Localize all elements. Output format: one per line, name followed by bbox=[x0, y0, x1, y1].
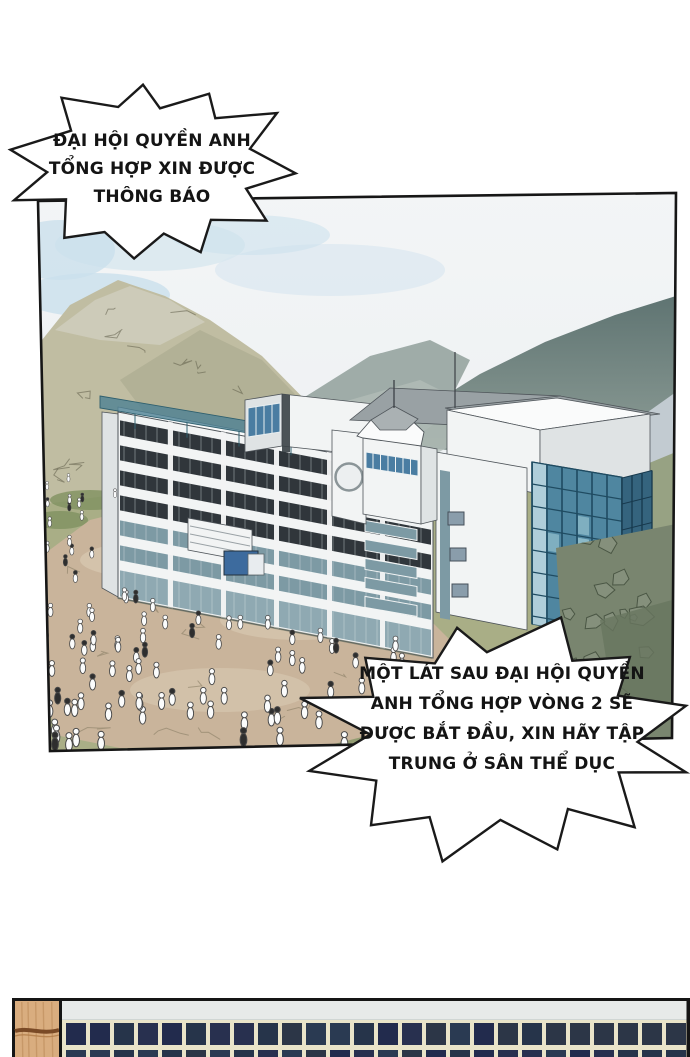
figure-body bbox=[49, 665, 55, 676]
wall-tile bbox=[498, 1050, 518, 1057]
figure-head bbox=[80, 511, 83, 514]
figure-body bbox=[140, 633, 145, 643]
wall-tile bbox=[594, 1050, 614, 1057]
crowd-figure bbox=[78, 619, 83, 633]
wall-tile bbox=[354, 1023, 374, 1045]
wall-tile bbox=[522, 1050, 542, 1057]
crowd-figure bbox=[113, 489, 116, 498]
crowd-figure bbox=[209, 669, 215, 685]
figure-head bbox=[119, 690, 125, 696]
crowd-figure bbox=[163, 615, 168, 629]
crowd-figure bbox=[90, 547, 94, 558]
curtain-light-panel bbox=[578, 516, 589, 536]
figure-head bbox=[238, 615, 243, 620]
figure-head bbox=[208, 701, 214, 707]
figure-head bbox=[134, 647, 139, 652]
figure-body bbox=[55, 692, 61, 704]
figure-body bbox=[126, 670, 132, 681]
figure-body bbox=[73, 574, 77, 582]
figure-body bbox=[359, 683, 365, 694]
figure-head bbox=[201, 687, 206, 692]
figure-head bbox=[300, 658, 305, 663]
figure-body bbox=[72, 705, 78, 717]
figure-body bbox=[63, 558, 67, 566]
facade-pier bbox=[168, 422, 173, 609]
crowd-figure bbox=[150, 598, 155, 611]
figure-head bbox=[142, 612, 147, 617]
figure-head bbox=[122, 588, 126, 592]
next-panel-preview bbox=[12, 998, 690, 1057]
crowd-figure bbox=[48, 603, 53, 616]
figure-head bbox=[240, 728, 246, 734]
crowd-figure bbox=[90, 674, 96, 690]
wall-tile bbox=[642, 1023, 662, 1045]
wall-tile bbox=[330, 1050, 350, 1057]
wall-tile bbox=[402, 1050, 422, 1057]
crowd-figure bbox=[290, 630, 295, 645]
crowd-figure bbox=[196, 611, 201, 625]
figure-body bbox=[196, 615, 201, 625]
figure-body bbox=[48, 520, 52, 527]
crowd-figure bbox=[140, 628, 145, 643]
figure-head bbox=[34, 596, 38, 600]
figure-body bbox=[52, 738, 59, 751]
figure-body bbox=[393, 641, 398, 651]
crowd-figure bbox=[38, 530, 42, 541]
crowd-figure bbox=[240, 728, 247, 746]
wall-tile bbox=[306, 1023, 326, 1045]
wall-tile bbox=[618, 1023, 638, 1045]
comic-page: ĐẠI HỘI QUYỀN ANH TỔNG HỢP XIN ĐƯỢC THÔN… bbox=[0, 0, 690, 1057]
figure-body bbox=[189, 628, 194, 638]
figure-head bbox=[78, 693, 84, 699]
figure-head bbox=[359, 678, 364, 683]
crowd-figure bbox=[187, 702, 193, 719]
crowd-figure bbox=[66, 733, 73, 752]
figure-body bbox=[81, 496, 84, 502]
building-end-cap bbox=[102, 412, 118, 597]
figure-body bbox=[289, 655, 295, 666]
turret-front bbox=[363, 436, 421, 524]
crowd-figure bbox=[80, 511, 84, 521]
crowd-figure bbox=[119, 690, 125, 707]
crowd-figure bbox=[241, 712, 248, 730]
crowd-figure bbox=[81, 493, 84, 502]
crowd-figure bbox=[238, 615, 243, 629]
crowd-figure bbox=[39, 609, 44, 623]
figure-head bbox=[127, 666, 132, 671]
wall-top-band bbox=[62, 1001, 690, 1020]
wall-tile bbox=[258, 1023, 278, 1045]
figure-body bbox=[42, 662, 48, 673]
figure-head bbox=[159, 693, 165, 699]
wall-tile bbox=[570, 1023, 590, 1045]
figure-body bbox=[91, 635, 96, 645]
figure-body bbox=[142, 616, 147, 626]
figure-head bbox=[52, 732, 58, 738]
figure-body bbox=[200, 692, 206, 704]
wall-tile bbox=[282, 1050, 302, 1057]
figure-head bbox=[68, 535, 72, 539]
crowd-figure bbox=[48, 517, 52, 527]
figure-body bbox=[105, 708, 111, 720]
crowd-figure bbox=[133, 590, 138, 603]
figure-body bbox=[90, 679, 96, 690]
figure-body bbox=[268, 714, 274, 726]
crowd-figure bbox=[68, 494, 71, 503]
wall-tile bbox=[642, 1050, 662, 1057]
figure-body bbox=[38, 534, 42, 541]
figure-body bbox=[333, 643, 338, 653]
crowd-figure bbox=[299, 658, 305, 674]
figure-head bbox=[399, 653, 404, 658]
figure-head bbox=[290, 630, 295, 635]
figure-head bbox=[341, 732, 347, 738]
crowd-figure bbox=[301, 701, 307, 718]
figure-body bbox=[150, 602, 155, 611]
wall-tile bbox=[186, 1023, 206, 1045]
crowd-figure bbox=[136, 692, 142, 709]
tile-wall bbox=[62, 1020, 690, 1057]
figure-head bbox=[68, 494, 71, 497]
figure-body bbox=[68, 538, 72, 545]
wall-tile bbox=[522, 1023, 542, 1045]
figure-head bbox=[90, 547, 94, 551]
figure-body bbox=[142, 647, 148, 657]
figure-body bbox=[154, 667, 160, 678]
figure-body bbox=[163, 619, 168, 629]
crowd-figure bbox=[274, 707, 280, 725]
wall-tile bbox=[450, 1050, 470, 1057]
crowd-figure bbox=[49, 661, 55, 677]
figure-body bbox=[264, 700, 270, 712]
wall-tile bbox=[90, 1050, 110, 1057]
crowd-figure bbox=[63, 555, 67, 567]
wall-tile bbox=[666, 1023, 686, 1045]
figure-body bbox=[34, 600, 39, 609]
figure-body bbox=[226, 620, 231, 630]
figure-body bbox=[70, 639, 75, 649]
small-window bbox=[448, 512, 464, 525]
figure-body bbox=[301, 707, 307, 719]
figure-body bbox=[290, 634, 295, 644]
entrance-door bbox=[248, 554, 264, 575]
figure-body bbox=[238, 619, 243, 629]
turret-side bbox=[421, 446, 437, 524]
figure-head bbox=[151, 598, 155, 602]
wall-tile bbox=[570, 1050, 590, 1057]
figure-head bbox=[318, 628, 323, 633]
crowd-figure bbox=[72, 699, 78, 716]
wall-tile bbox=[210, 1050, 230, 1057]
crowd-figure bbox=[78, 693, 84, 710]
figure-body bbox=[82, 645, 87, 655]
figure-body bbox=[115, 642, 120, 652]
crowd-figure bbox=[207, 701, 213, 718]
round-emblem bbox=[336, 464, 363, 491]
crowd-figure bbox=[46, 498, 49, 507]
crowd-figure bbox=[91, 630, 96, 645]
wall-tile bbox=[354, 1050, 374, 1057]
figure-head bbox=[42, 657, 47, 662]
figure-body bbox=[48, 607, 53, 616]
figure-head bbox=[169, 688, 175, 694]
figure-head bbox=[134, 590, 138, 594]
figure-head bbox=[142, 642, 147, 647]
figure-head bbox=[46, 481, 49, 484]
figure-head bbox=[221, 687, 226, 692]
figure-body bbox=[37, 498, 40, 504]
curtain-light-column bbox=[533, 462, 546, 626]
crowd-figure bbox=[265, 615, 270, 629]
figure-head bbox=[328, 681, 333, 686]
wall-tile bbox=[450, 1023, 470, 1045]
crowd-figure bbox=[64, 698, 70, 715]
crowd-figure bbox=[39, 543, 43, 554]
crowd-figure bbox=[52, 732, 59, 751]
small-window bbox=[450, 548, 466, 561]
crowd-figure bbox=[82, 640, 87, 655]
figure-head bbox=[163, 615, 168, 620]
figure-body bbox=[46, 500, 49, 506]
figure-body bbox=[73, 734, 80, 747]
wall-tile bbox=[306, 1050, 326, 1057]
crowd-figure bbox=[200, 687, 206, 704]
figure-head bbox=[49, 661, 54, 666]
crowd-figure bbox=[393, 636, 398, 651]
wall-tile bbox=[402, 1023, 422, 1045]
figure-body bbox=[328, 686, 334, 697]
wall-tile bbox=[258, 1050, 278, 1057]
crowd-figure bbox=[68, 535, 72, 546]
figure-body bbox=[139, 712, 145, 724]
figure-body bbox=[113, 492, 116, 498]
crowd-figure bbox=[115, 637, 120, 652]
crowd-figure bbox=[110, 661, 116, 677]
figure-head bbox=[72, 699, 78, 705]
wall-tile bbox=[666, 1050, 686, 1057]
figure-head bbox=[90, 674, 95, 679]
strip-left-border bbox=[12, 998, 15, 1057]
wood-seam bbox=[15, 1030, 59, 1032]
crowd-figure bbox=[221, 687, 227, 704]
figure-head bbox=[70, 634, 75, 639]
wall-tile bbox=[186, 1050, 206, 1057]
figure-head bbox=[265, 695, 271, 701]
strip-right-border bbox=[687, 998, 690, 1057]
figure-body bbox=[318, 633, 323, 643]
crowd-figure bbox=[98, 731, 105, 750]
stair-tower-slot bbox=[440, 470, 450, 620]
crowd-figure bbox=[277, 727, 284, 745]
figure-body bbox=[281, 685, 287, 696]
figure-body bbox=[274, 712, 280, 724]
figure-head bbox=[190, 623, 195, 628]
figure-body bbox=[240, 733, 247, 746]
crowd-figure bbox=[37, 495, 40, 504]
figure-body bbox=[221, 692, 227, 704]
figure-head bbox=[37, 495, 40, 498]
figure-head bbox=[216, 635, 221, 640]
tree-clump bbox=[32, 511, 88, 529]
wall-tile bbox=[282, 1023, 302, 1045]
figure-body bbox=[98, 737, 105, 750]
figure-body bbox=[39, 614, 44, 624]
crowd-figure bbox=[353, 653, 359, 668]
figure-body bbox=[68, 504, 71, 511]
figure-body bbox=[136, 697, 142, 709]
figure-body bbox=[39, 547, 43, 555]
figure-head bbox=[282, 680, 287, 685]
figure-head bbox=[275, 707, 281, 713]
penthouse-edge bbox=[282, 394, 290, 452]
figure-body bbox=[169, 694, 175, 706]
small-window bbox=[452, 584, 468, 597]
crowd-figure bbox=[169, 688, 175, 705]
crowd-figure bbox=[42, 657, 48, 673]
wall-tile bbox=[474, 1023, 494, 1045]
figure-head bbox=[136, 692, 142, 698]
crowd-figure bbox=[318, 628, 323, 642]
wall-tile bbox=[618, 1050, 638, 1057]
figure-body bbox=[68, 497, 71, 503]
figure-head bbox=[266, 615, 271, 620]
figure-head bbox=[52, 719, 58, 725]
figure-head bbox=[78, 498, 81, 501]
crowd-figure bbox=[80, 658, 86, 674]
crowd-figure bbox=[189, 623, 194, 637]
figure-head bbox=[106, 703, 112, 709]
figure-head bbox=[242, 712, 248, 718]
comic-scene-svg bbox=[0, 0, 690, 1057]
figure-body bbox=[119, 695, 125, 707]
wall-tile bbox=[114, 1050, 134, 1057]
crowd-figure bbox=[264, 695, 270, 712]
figure-body bbox=[122, 592, 127, 601]
figure-head bbox=[80, 658, 85, 663]
figure-body bbox=[187, 707, 193, 719]
crowd-figure bbox=[136, 659, 142, 675]
figure-body bbox=[267, 665, 273, 676]
wall-tile bbox=[162, 1023, 182, 1045]
figure-body bbox=[316, 716, 323, 728]
figure-head bbox=[54, 725, 60, 731]
figure-body bbox=[46, 484, 49, 490]
crowd-figure bbox=[55, 687, 61, 704]
figure-head bbox=[78, 619, 83, 624]
figure-head bbox=[188, 702, 194, 708]
figure-body bbox=[77, 501, 80, 507]
figure-head bbox=[277, 727, 283, 733]
figure-body bbox=[80, 663, 86, 674]
wall-tile bbox=[114, 1023, 134, 1045]
figure-head bbox=[39, 609, 43, 613]
wall-tile bbox=[210, 1023, 230, 1045]
figure-head bbox=[48, 517, 51, 520]
figure-body bbox=[133, 594, 138, 603]
figure-head bbox=[209, 669, 214, 674]
figure-body bbox=[209, 674, 215, 685]
figure-head bbox=[55, 687, 60, 692]
crowd-figure bbox=[34, 596, 39, 609]
figure-head bbox=[196, 611, 201, 616]
wall-tile bbox=[138, 1050, 158, 1057]
facade-pier bbox=[274, 442, 279, 629]
figure-head bbox=[39, 543, 43, 547]
figure-body bbox=[277, 733, 284, 746]
crowd-figure bbox=[216, 635, 221, 650]
crowd-figure bbox=[281, 680, 287, 697]
figure-head bbox=[87, 603, 91, 607]
crowd-figure bbox=[158, 693, 164, 710]
figure-head bbox=[64, 555, 68, 559]
figure-head bbox=[290, 650, 295, 655]
figure-head bbox=[73, 728, 79, 734]
figure-head bbox=[353, 653, 358, 658]
facade-pier bbox=[327, 452, 332, 639]
crowd-figure bbox=[142, 612, 147, 626]
penthouse-glass-row bbox=[248, 403, 280, 437]
wall-tile bbox=[90, 1023, 110, 1045]
figure-head bbox=[65, 698, 71, 704]
crowd-figure bbox=[226, 616, 231, 630]
figure-head bbox=[39, 530, 42, 533]
figure-head bbox=[46, 498, 49, 501]
figure-body bbox=[299, 662, 305, 673]
wall-tile bbox=[234, 1023, 254, 1045]
crowd-figure bbox=[333, 638, 338, 653]
figure-head bbox=[316, 711, 322, 717]
wall-tile bbox=[138, 1023, 158, 1045]
wall-tile bbox=[546, 1050, 566, 1057]
wall-tile bbox=[426, 1023, 446, 1045]
figure-body bbox=[64, 704, 70, 716]
figure-body bbox=[353, 657, 359, 668]
crowd-figure bbox=[359, 678, 365, 694]
crowd-figure bbox=[73, 728, 80, 746]
figure-body bbox=[66, 738, 73, 751]
figure-body bbox=[207, 706, 213, 718]
figure-body bbox=[265, 620, 270, 630]
crowd-figure bbox=[122, 588, 127, 601]
figure-head bbox=[141, 628, 146, 633]
crowd-figure bbox=[316, 711, 323, 729]
crowd-figure bbox=[126, 666, 132, 682]
figure-head bbox=[81, 493, 84, 496]
figure-head bbox=[227, 616, 232, 621]
crowd-figure bbox=[267, 660, 273, 676]
crowd-figure bbox=[328, 681, 334, 698]
figure-head bbox=[98, 731, 104, 737]
figure-body bbox=[80, 514, 84, 521]
crowd-figure bbox=[289, 650, 295, 665]
figure-head bbox=[90, 608, 94, 612]
stair-slot-window bbox=[440, 470, 450, 620]
figure-head bbox=[82, 640, 87, 645]
crowd-figure bbox=[77, 498, 80, 507]
figure-body bbox=[158, 698, 164, 710]
strip-top-border bbox=[12, 998, 690, 1002]
crowd-figure bbox=[89, 608, 94, 622]
figure-head bbox=[276, 647, 281, 652]
wall-tile bbox=[474, 1050, 494, 1057]
wall-tile bbox=[378, 1050, 398, 1057]
wall-tile bbox=[498, 1023, 518, 1045]
figure-head bbox=[48, 603, 52, 607]
figure-body bbox=[136, 663, 142, 674]
wall-tile bbox=[426, 1050, 446, 1057]
figure-body bbox=[275, 652, 281, 663]
